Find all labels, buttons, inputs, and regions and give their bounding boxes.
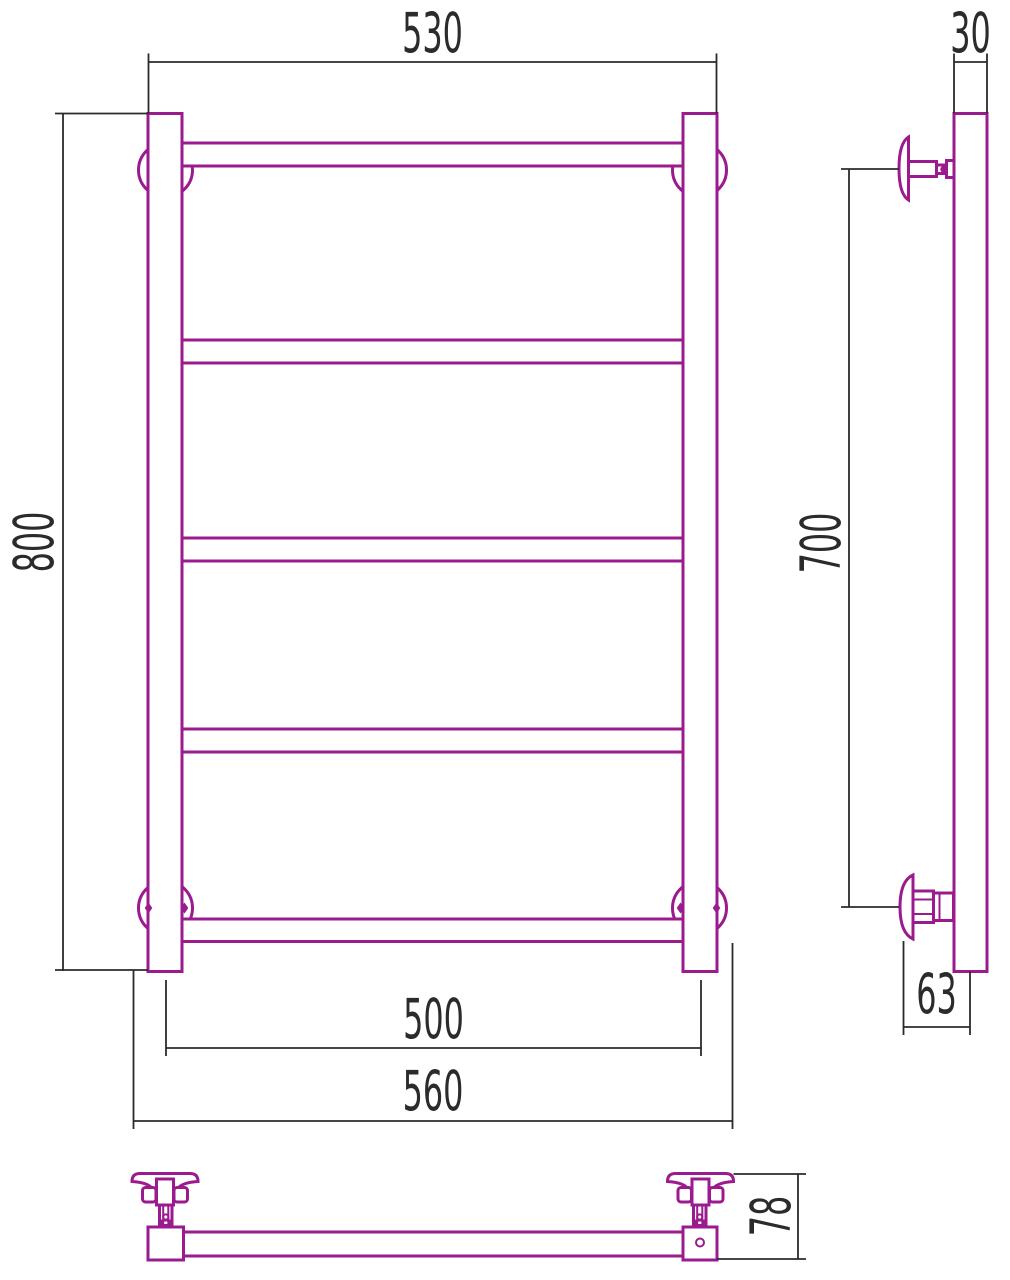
rung-3 (160, 538, 705, 561)
bottom-bracket (132, 1174, 198, 1228)
dim-text-560: 560 (403, 1059, 464, 1124)
side-tube (954, 114, 987, 972)
bracket-tab (143, 1188, 157, 1203)
front-view (139, 114, 727, 972)
dim-30: 30 (950, 1, 991, 114)
post-right (683, 114, 717, 972)
bottom-rail (160, 1232, 690, 1256)
dim-text-530: 530 (402, 1, 463, 66)
bracket-stem-top (909, 162, 937, 177)
dim-text-700: 700 (789, 513, 854, 574)
bracket-nut-bottom (913, 891, 934, 923)
dim-text-30: 30 (950, 1, 991, 66)
dim-800: 800 (2, 114, 148, 972)
technical-drawing: 530 800 500 560 30 (0, 0, 1010, 1280)
rung-5 (160, 919, 705, 942)
side-view (899, 114, 987, 972)
post-section-left (148, 1227, 184, 1260)
bracket-collar-bottom (934, 893, 954, 921)
post-left (148, 114, 182, 972)
dim-text-500: 500 (403, 987, 464, 1052)
bottom-view (132, 1174, 734, 1261)
bottom-bracket-right (668, 1174, 734, 1228)
dim-78: 78 (717, 1174, 806, 1259)
dim-text-78: 78 (739, 1196, 804, 1237)
rung-2 (160, 340, 705, 363)
bracket-tab (174, 1188, 188, 1203)
dim-500: 500 (166, 980, 701, 1056)
bracket-stem (157, 1179, 174, 1205)
wall-plate-bottom (900, 875, 913, 939)
rung-4 (160, 729, 705, 752)
dim-700: 700 (789, 169, 899, 907)
rung-1 (160, 143, 705, 166)
dim-530: 530 (149, 1, 717, 114)
post-section-right (683, 1227, 717, 1260)
dim-text-800: 800 (2, 512, 67, 573)
dim-text-63: 63 (916, 962, 957, 1027)
drawing-canvas: 530 800 500 560 30 (0, 0, 1010, 1280)
